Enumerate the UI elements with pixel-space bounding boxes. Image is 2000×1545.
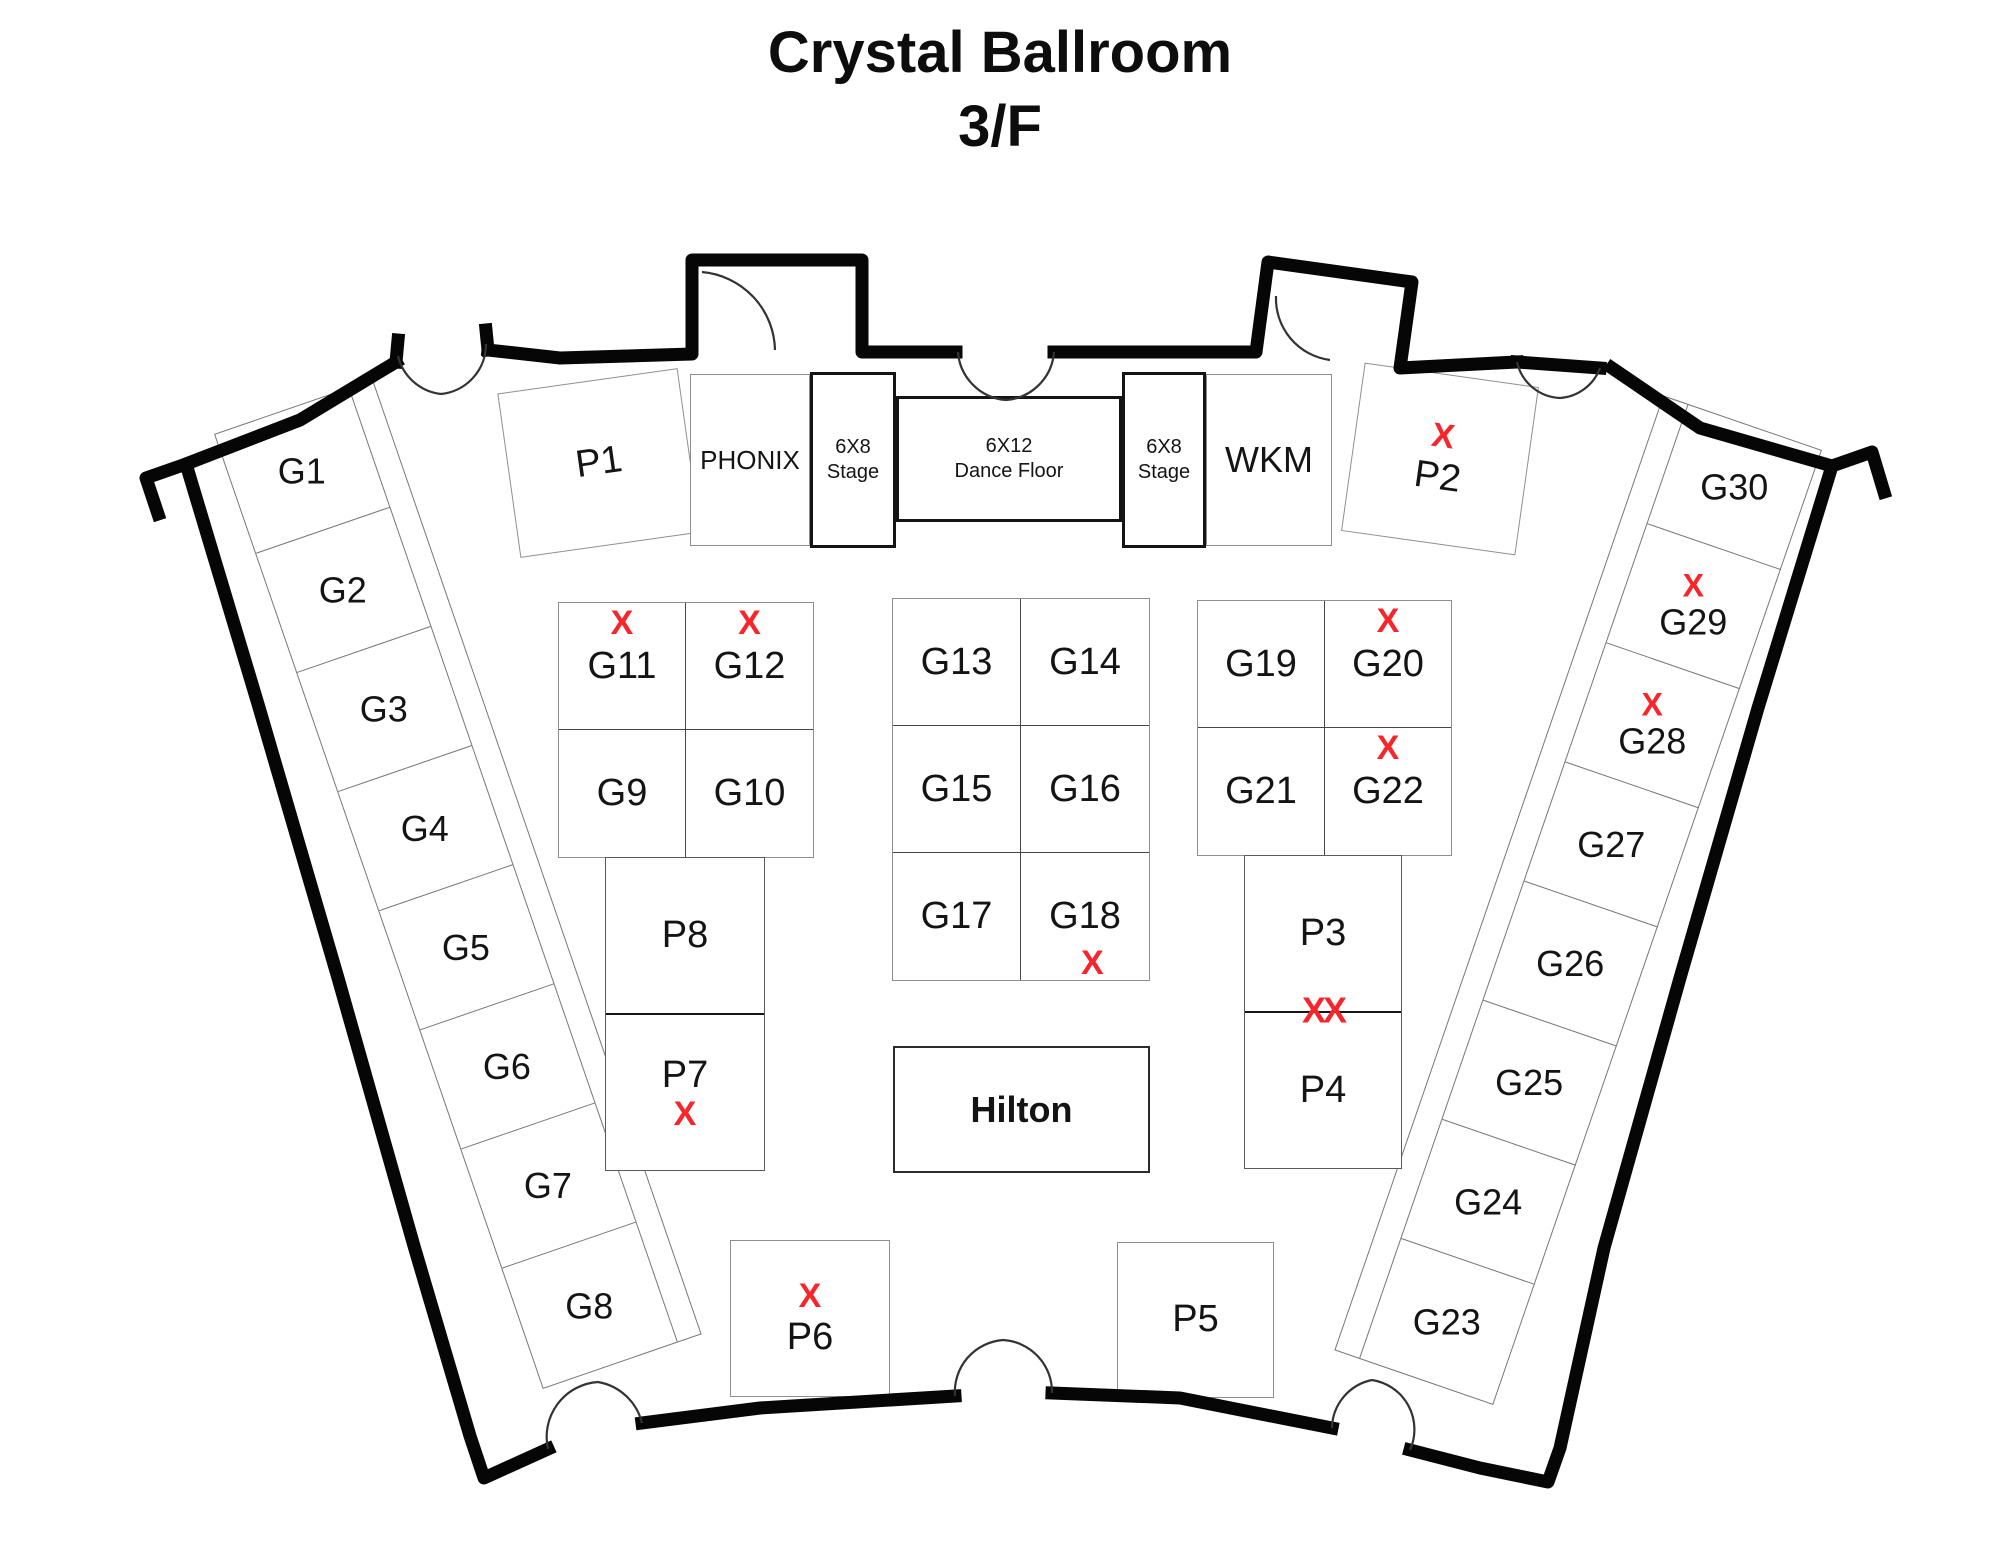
booth-g10-label: G10	[714, 772, 786, 815]
pallet-p8: P8	[606, 858, 764, 1013]
booth-g24-label: G24	[1455, 1183, 1523, 1223]
pallet-p6-label: P6	[787, 1317, 833, 1359]
booth-g17-label: G17	[921, 895, 993, 938]
x-mark-g12: X	[686, 606, 813, 640]
booth-g7-label: G7	[524, 1166, 572, 1206]
booth-g9: G9	[559, 730, 686, 857]
booth-g14-label: G14	[1049, 641, 1121, 684]
booth-g21: G21	[1198, 728, 1325, 855]
booth-g30-label: G30	[1701, 468, 1769, 508]
booth-g12: XG12	[686, 603, 813, 730]
booth-strip-right-cells: G30 XG29 XG28 G27 G26 G25 G24 G23	[1359, 405, 1821, 1404]
booth-g26-label: G26	[1537, 944, 1605, 984]
x-mark-p7: X	[674, 1097, 697, 1131]
dance-floor-size: 6X12	[986, 434, 1033, 459]
booth-g8-label: G8	[566, 1286, 614, 1326]
booth-g16: G16	[1021, 726, 1149, 853]
booth-g11: XG11	[559, 603, 686, 730]
pallet-stack-p3-p4: XX P3 P4	[1244, 855, 1402, 1169]
pallet-p1: P1	[497, 368, 700, 558]
booth-g18: G18X	[1021, 853, 1149, 980]
pallet-p7: P7X	[606, 1013, 764, 1170]
pallet-p3-label: P3	[1300, 912, 1346, 955]
booth-phonix-label: PHONIX	[700, 445, 800, 476]
pallet-p5: P5	[1117, 1242, 1274, 1398]
booth-phonix: PHONIX	[690, 374, 810, 546]
booth-g25-label: G25	[1496, 1063, 1564, 1103]
booth-g13: G13	[893, 599, 1021, 726]
booth-strip-right: G30 XG29 XG28 G27 G26 G25 G24 G23	[1334, 395, 1822, 1405]
x-mark-g11: X	[559, 606, 685, 640]
booth-g10: G10	[686, 730, 813, 857]
booth-g16-label: G16	[1049, 768, 1121, 811]
booth-g21-label: G21	[1225, 770, 1297, 813]
stage-left-label: Stage	[827, 460, 879, 485]
stage-right: 6X8 Stage	[1122, 372, 1206, 548]
dance-floor: 6X12 Dance Floor	[896, 396, 1122, 522]
pallet-p2-label: P2	[1411, 454, 1463, 502]
xx-mark-p3-p4: XX	[1245, 989, 1401, 1031]
booth-g4-label: G4	[401, 809, 449, 849]
stage-right-label: Stage	[1138, 460, 1190, 485]
booth-g20-label: G20	[1352, 643, 1424, 686]
pallet-p4-label: P4	[1300, 1069, 1346, 1112]
stage-left: 6X8 Stage	[810, 372, 896, 548]
pallet-p7-label: P7	[662, 1054, 708, 1097]
pallet-p1-label: P1	[573, 439, 625, 487]
pallet-stack-p8-p7: P8 P7X	[605, 857, 765, 1171]
booth-g11-label: G11	[587, 645, 656, 688]
booth-g22: XG22	[1325, 728, 1451, 855]
booth-g29-label: G29	[1660, 603, 1728, 643]
booth-g15-label: G15	[921, 768, 993, 811]
x-mark-g29: X	[1683, 570, 1704, 602]
page-title: Crystal Ballroom 3/F	[0, 16, 2000, 164]
booth-wkm-label: WKM	[1225, 439, 1313, 481]
booth-cluster-center: G13 G14 G15 G16 G17 G18X	[892, 598, 1150, 981]
booth-g3-label: G3	[360, 690, 408, 730]
booth-g18-label: G18	[1049, 895, 1121, 938]
x-mark-g28: X	[1642, 689, 1663, 721]
floor-plan: Crystal Ballroom 3/F P1 PHONIX 6X8 Stage…	[0, 0, 2000, 1545]
booth-g28-label: G28	[1619, 722, 1687, 762]
booth-g27-label: G27	[1578, 825, 1646, 865]
booth-g17: G17	[893, 853, 1021, 980]
booth-g22-label: G22	[1352, 770, 1424, 813]
booth-cluster-left: XG11 XG12 G9 G10	[558, 602, 814, 858]
booth-g20: XG20	[1325, 601, 1451, 728]
stage-right-size: 6X8	[1146, 435, 1182, 460]
dance-floor-label: Dance Floor	[955, 459, 1064, 484]
booth-g15: G15	[893, 726, 1021, 853]
pallet-p3: P3	[1245, 856, 1401, 1011]
title-ballroom: Crystal Ballroom	[0, 16, 2000, 90]
hilton-table: Hilton	[893, 1046, 1150, 1173]
stage-left-size: 6X8	[835, 435, 871, 460]
pallet-p5-label: P5	[1172, 1299, 1218, 1341]
booth-g2-label: G2	[319, 571, 367, 611]
booth-g14: G14	[1021, 599, 1149, 726]
x-mark-g20: X	[1325, 604, 1451, 638]
booth-g13-label: G13	[921, 641, 993, 684]
x-mark-p6: X	[799, 1279, 822, 1313]
title-floor: 3/F	[0, 90, 2000, 164]
pallet-p8-label: P8	[662, 914, 708, 957]
booth-g12-label: G12	[714, 645, 786, 688]
booth-wkm: WKM	[1206, 374, 1332, 546]
hilton-label: Hilton	[971, 1089, 1073, 1131]
booth-g5-label: G5	[442, 928, 490, 968]
x-mark-g22: X	[1325, 731, 1451, 765]
booth-g1-label: G1	[278, 451, 326, 491]
booth-g6-label: G6	[483, 1047, 531, 1087]
pallet-p6: X P6	[730, 1240, 890, 1397]
x-mark-p2: X	[1430, 418, 1457, 455]
booth-g19-label: G19	[1225, 643, 1297, 686]
booth-g19: G19	[1198, 601, 1325, 728]
booth-cluster-right: G19 XG20 G21 XG22	[1197, 600, 1452, 856]
x-mark-g18: X	[1081, 946, 1104, 980]
pallet-p2: X P2	[1341, 363, 1539, 556]
booth-g23-label: G23	[1413, 1302, 1481, 1342]
booth-g9-label: G9	[597, 772, 648, 815]
pallet-p4: P4	[1245, 1011, 1401, 1168]
